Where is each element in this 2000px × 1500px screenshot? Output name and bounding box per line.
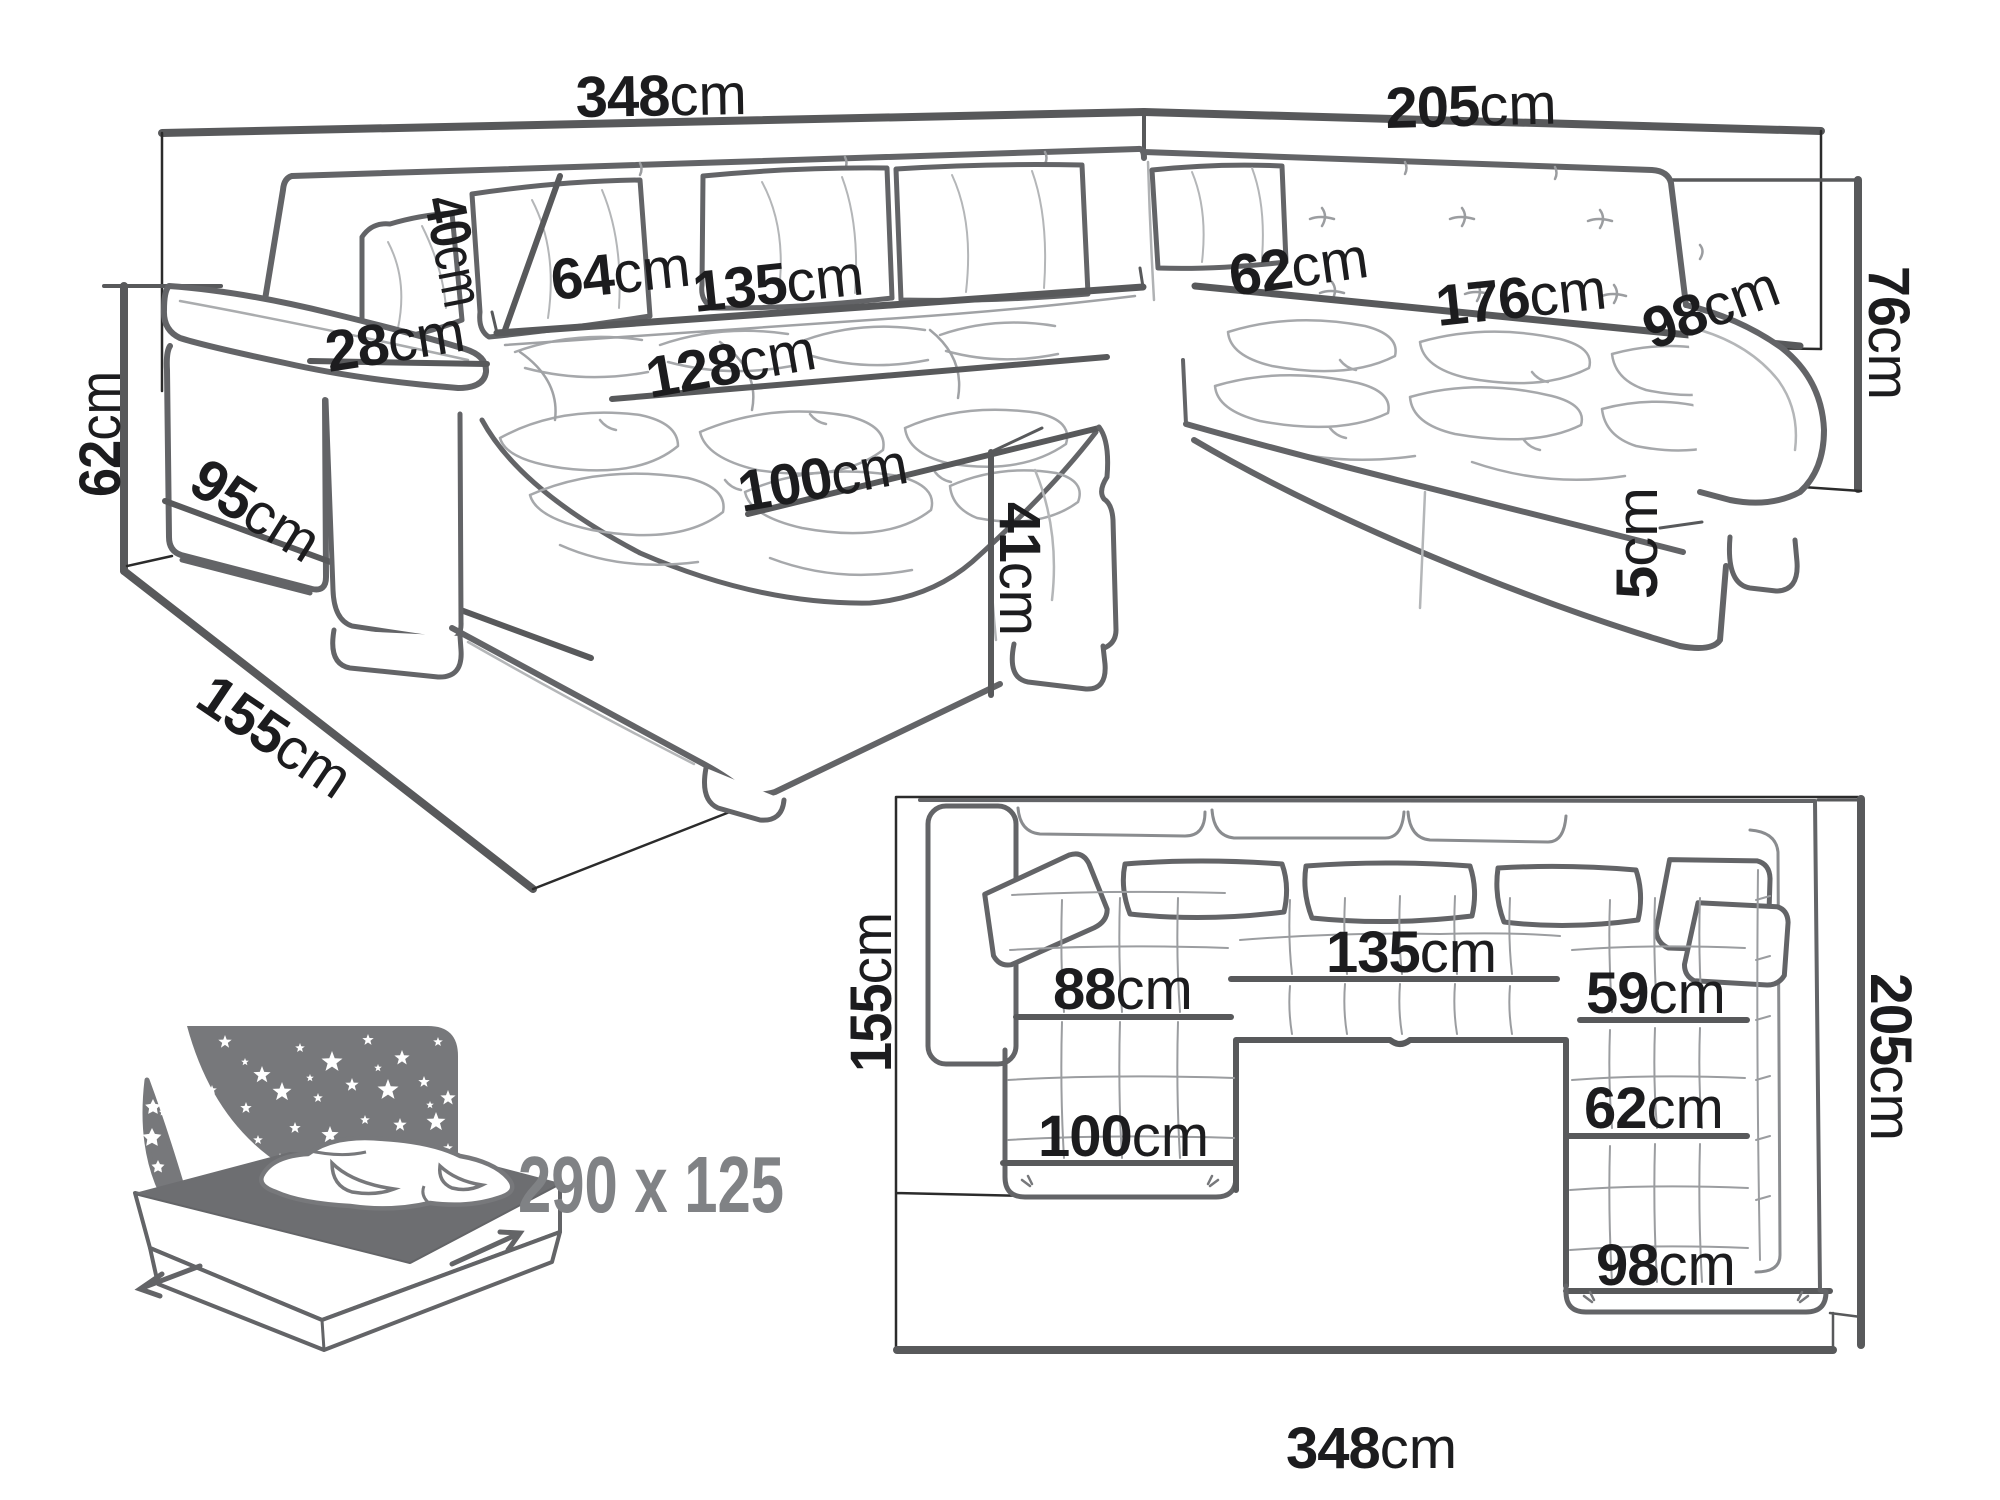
svg-text:290 x 125: 290 x 125: [518, 1140, 784, 1229]
svg-text:348cm: 348cm: [575, 62, 747, 130]
svg-text:98cm: 98cm: [1596, 1233, 1736, 1298]
svg-text:59cm: 59cm: [1586, 961, 1726, 1026]
svg-text:100cm: 100cm: [1038, 1104, 1209, 1169]
svg-text:348cm: 348cm: [1286, 1416, 1457, 1481]
svg-text:41cm: 41cm: [987, 502, 1052, 636]
svg-text:205cm: 205cm: [1858, 973, 1923, 1141]
svg-text:135cm: 135cm: [1326, 920, 1497, 985]
svg-text:155cm: 155cm: [839, 912, 904, 1072]
svg-text:76cm: 76cm: [1856, 266, 1921, 400]
svg-text:62cm: 62cm: [1584, 1076, 1724, 1141]
svg-text:62cm: 62cm: [68, 371, 133, 497]
svg-text:88cm: 88cm: [1053, 957, 1193, 1022]
svg-text:5cm: 5cm: [1605, 487, 1670, 599]
svg-text:205cm: 205cm: [1385, 72, 1558, 141]
